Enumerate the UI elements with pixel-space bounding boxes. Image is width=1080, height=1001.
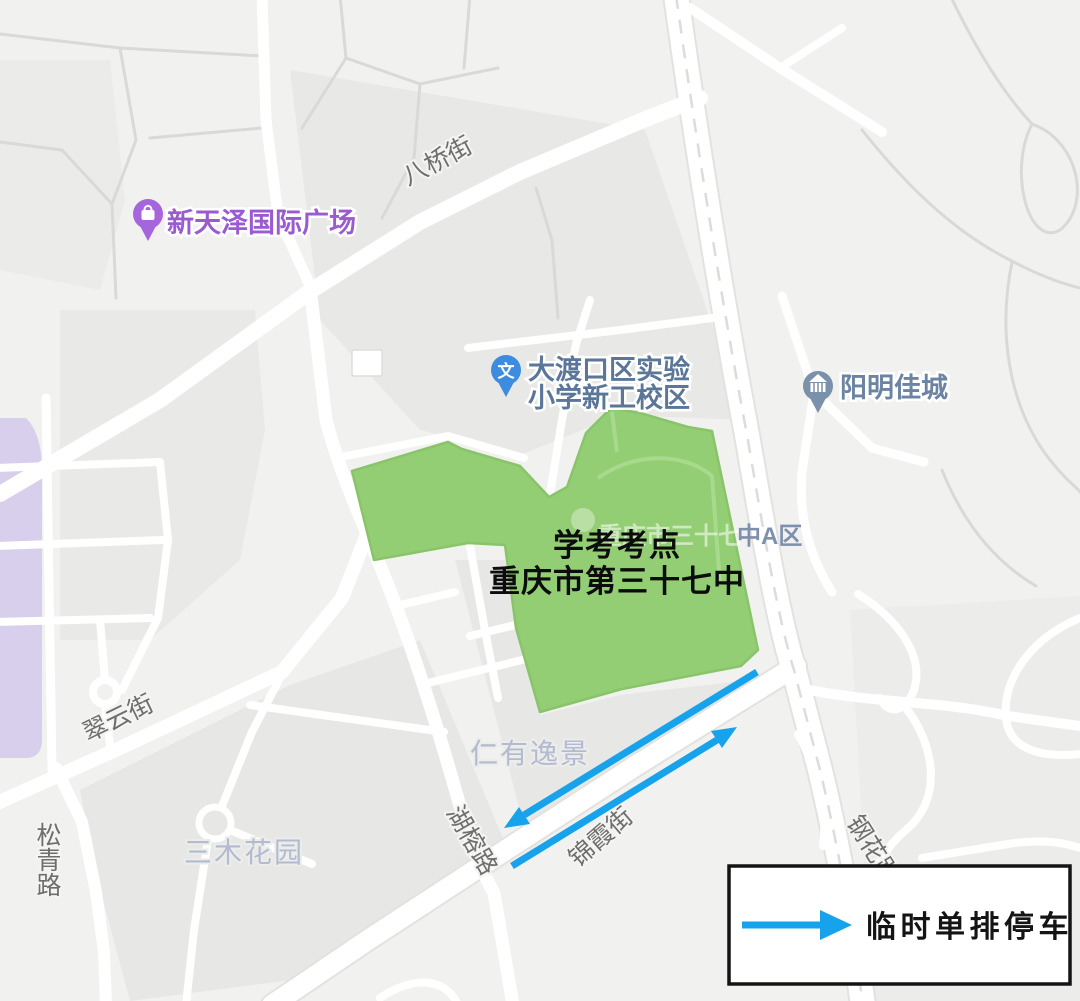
- legend: 临时单排停车: [729, 866, 1073, 984]
- road-segment: [0, 618, 150, 622]
- area-label-sanmu: 三木花园: [184, 837, 304, 868]
- block: [0, 60, 125, 290]
- poi-label-yangming[interactable]: 阳明佳城: [840, 373, 948, 403]
- campus-base-label-visible: 中A区: [737, 523, 802, 550]
- poi-label-primary-school-line1[interactable]: 大渡口区实验: [528, 354, 690, 385]
- map-svg[interactable]: 重庆市三十七 中A区 八桥街 翠云街 松青路 湖榕路 锦霞街 钢花路 仁有逸景 …: [0, 0, 1080, 1001]
- area-label-renyou: 仁有逸景: [470, 738, 590, 769]
- exam-site-line2: 重庆市第三十七中: [489, 564, 745, 599]
- school-wen-glyph: 文: [498, 361, 516, 381]
- road-segment: [46, 398, 52, 770]
- exam-site-line1: 学考考点: [553, 528, 681, 563]
- road-segment: [100, 620, 105, 680]
- street-label-songqing: 松青路: [33, 822, 62, 897]
- poi-label-xintianze[interactable]: 新天泽国际广场: [167, 207, 356, 238]
- legend-label: 临时单排停车: [866, 910, 1073, 944]
- shopping-bag-glyph: [142, 210, 155, 220]
- poi-label-primary-school-line2[interactable]: 小学新工校区: [528, 382, 690, 413]
- building-footprint: [352, 350, 382, 376]
- map-canvas[interactable]: 重庆市三十七 中A区 八桥街 翠云街 松青路 湖榕路 锦霞街 钢花路 仁有逸景 …: [0, 0, 1080, 1001]
